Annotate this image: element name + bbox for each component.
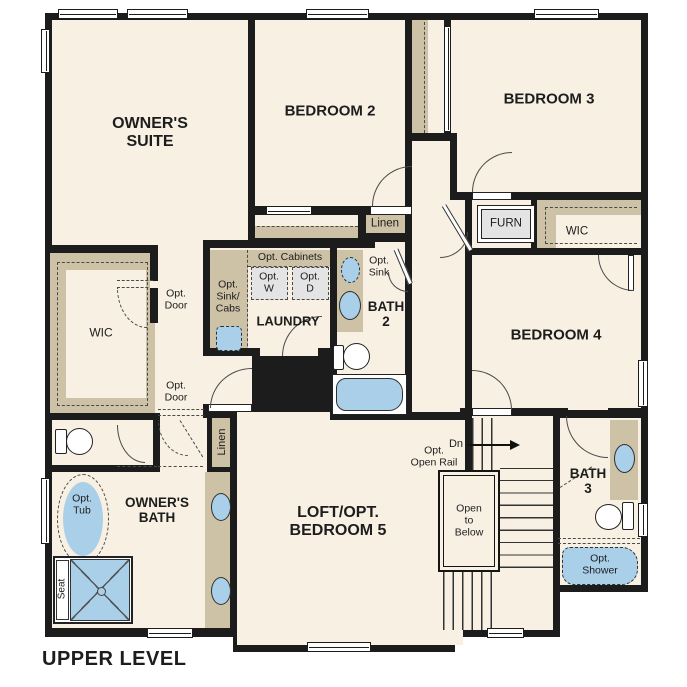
annotation-shower-seat: Seat xyxy=(56,579,67,600)
wall xyxy=(252,348,260,412)
window xyxy=(638,503,648,537)
bath3-toilet-bowl xyxy=(595,504,622,530)
annotation-opt-sink-cabs: Opt.Sink/Cabs xyxy=(216,279,241,314)
opt-door-hall-opening xyxy=(158,415,204,416)
wall xyxy=(207,413,212,472)
room-label-linen-owners: Linen xyxy=(216,429,228,456)
shower-pan xyxy=(70,559,130,621)
wall xyxy=(608,408,648,416)
room-label-owners-suite: OWNER'SSUITE xyxy=(112,115,188,151)
room-label-bedroom4: BEDROOM 4 xyxy=(511,328,602,345)
window xyxy=(127,9,188,19)
bath-hall-dashed-wall xyxy=(158,466,203,467)
wall xyxy=(358,233,408,241)
bedroom3-door-leaf xyxy=(472,192,512,200)
wic-bedroom4-shelf-line xyxy=(545,207,637,244)
bedroom3-closet-rod xyxy=(424,22,425,133)
stairs-down-arrow-line xyxy=(467,444,512,446)
bedroom2-closet-shelf xyxy=(252,226,358,238)
wall xyxy=(465,248,598,255)
stairs-down-arrow-head xyxy=(510,440,520,450)
room-label-furnace: FURN xyxy=(490,218,522,231)
room-label-wic-owners: WIC xyxy=(89,326,112,339)
window xyxy=(147,628,193,638)
window xyxy=(638,360,648,407)
window xyxy=(58,9,118,19)
annotation-opt-sink: Opt.Sink xyxy=(369,255,389,279)
annotation-opt-door-hall: Opt.Door xyxy=(165,380,188,404)
annotation-open-to-below: OpentoBelow xyxy=(444,503,494,538)
stairs-main-flight xyxy=(500,468,553,568)
window xyxy=(487,628,524,638)
annotation-opt-door-wic: Opt.Door xyxy=(165,288,188,312)
room-label-owners-bath: OWNER'SBATH xyxy=(125,495,189,525)
bath2-opt-sink xyxy=(341,257,360,283)
wall xyxy=(405,13,412,420)
wall xyxy=(465,248,472,420)
owners-vanity-sink-1 xyxy=(211,493,231,521)
wall xyxy=(512,408,568,416)
window xyxy=(306,9,369,19)
owners-vanity-sink-2 xyxy=(211,577,231,605)
window xyxy=(41,478,50,544)
wall xyxy=(230,413,237,628)
annotation-opt-open-rail: Opt.Open Rail xyxy=(411,445,458,469)
opt-door-hall-opening xyxy=(158,409,204,410)
laundry-opt-sink xyxy=(216,326,242,351)
page-title: UPPER LEVEL xyxy=(42,648,186,670)
room-label-loft: LOFT/OPT.BEDROOM 5 xyxy=(290,504,387,540)
room-label-bath3: BATH3 xyxy=(570,466,607,496)
bath2-tub xyxy=(336,378,403,411)
wall xyxy=(248,238,362,246)
room-label-laundry: LAUNDRY xyxy=(256,315,319,330)
bedroom2-closet-sliding-door xyxy=(266,206,312,215)
window xyxy=(41,29,50,73)
annotation-opt-cabinets: Opt. Cabinets xyxy=(258,252,322,264)
wall xyxy=(553,412,560,630)
wall xyxy=(465,200,472,206)
room-label-bath2: BATH2 xyxy=(368,299,405,329)
room-label-bedroom3: BEDROOM 3 xyxy=(504,92,595,109)
floor-bedroom2-closet xyxy=(252,215,358,226)
bath-hall-dashed-wall xyxy=(117,466,157,467)
bath3-sink xyxy=(614,444,635,473)
window xyxy=(307,642,371,652)
bath3-toilet-tank xyxy=(622,502,634,530)
annotation-opt-dryer: Opt.D xyxy=(300,271,320,295)
floor-plan-upper-level: OWNER'SSUITE BEDROOM 2 BEDROOM 3 BEDROOM… xyxy=(0,0,687,687)
floor-hall xyxy=(412,135,465,420)
annotation-opt-washer: Opt.W xyxy=(259,271,279,295)
wall xyxy=(203,248,210,348)
opt-door-wic-opening xyxy=(117,280,153,281)
room-label-bedroom2: BEDROOM 2 xyxy=(285,104,376,121)
opt-shower-dashed-wall xyxy=(558,543,640,544)
bath2-toilet-bowl xyxy=(343,343,370,370)
opt-door-wic-gap xyxy=(150,281,158,288)
room-label-wic-bedroom4: WIC xyxy=(566,226,588,239)
wall xyxy=(450,133,457,200)
opt-shower-dashed-wall xyxy=(558,538,640,539)
bath2-sink xyxy=(339,291,361,320)
window xyxy=(534,9,599,19)
bedroom3-closet-sliding-door xyxy=(444,26,451,132)
annotation-opt-shower: Opt.Shower xyxy=(582,553,618,577)
wall xyxy=(45,413,158,420)
wall xyxy=(634,248,648,255)
bedroom2-door-leaf xyxy=(370,206,412,215)
annotation-opt-tub: Opt.Tub xyxy=(72,493,92,517)
room-label-linen-hall: Linen xyxy=(371,218,399,231)
stairs-lower-flight xyxy=(443,570,498,630)
wall xyxy=(45,465,117,472)
bedroom3-closet-shelf xyxy=(412,20,428,135)
wall xyxy=(45,245,157,253)
owners-toilet-bowl xyxy=(66,428,93,455)
